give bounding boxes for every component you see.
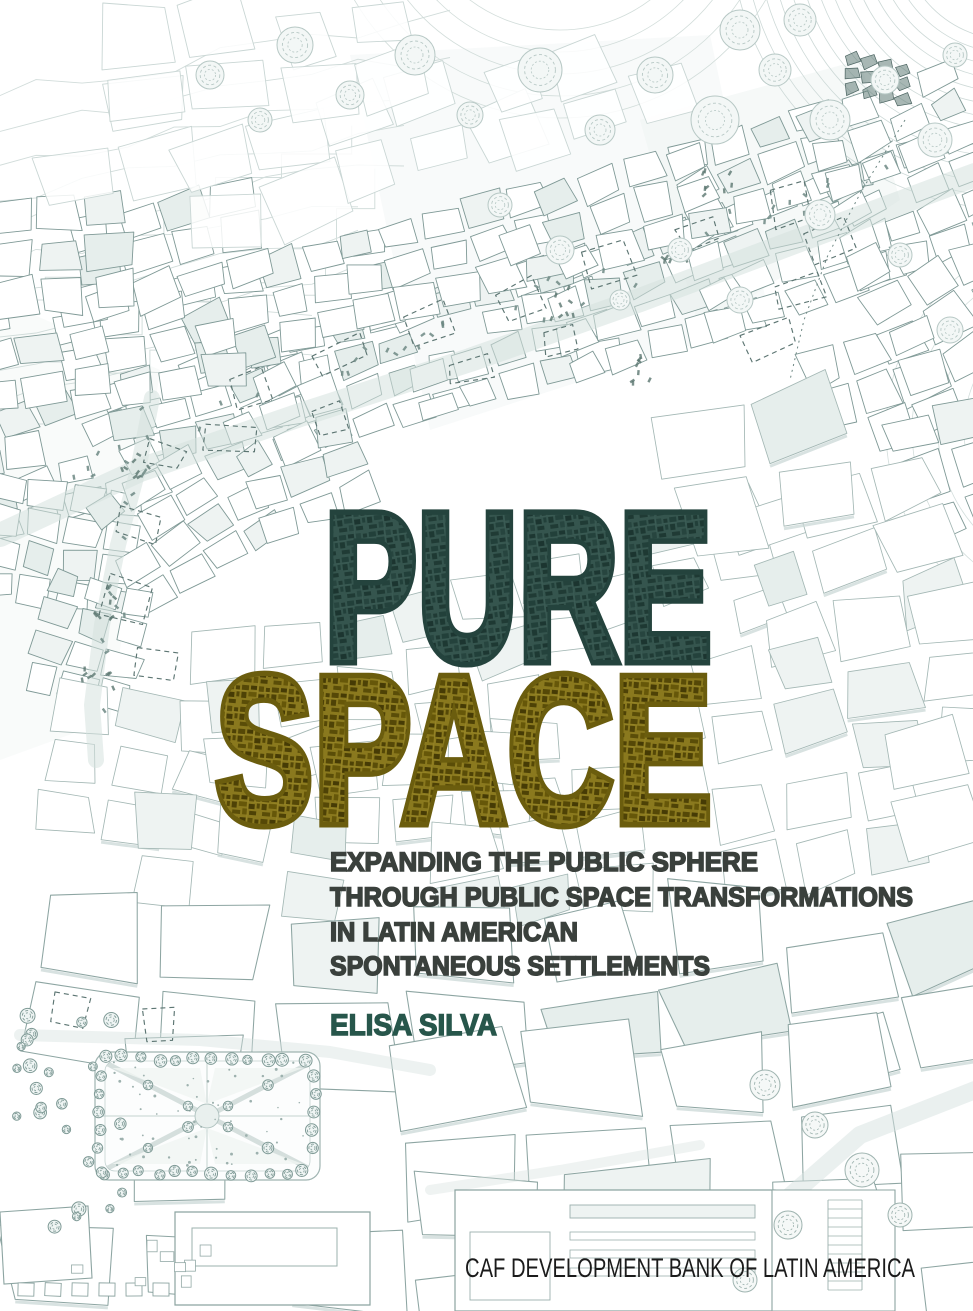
publisher-name: CAF DEVELOPMENT BANK OF LATIN AMERICA bbox=[465, 1253, 915, 1283]
subtitle-line-4: SPONTANEOUS SETTLEMENTS bbox=[330, 951, 710, 981]
title-word-space: SPACE bbox=[215, 634, 712, 867]
subtitle-line-2: THROUGH PUBLIC SPACE TRANSFORMATIONS bbox=[330, 882, 913, 912]
subtitle-line-3: IN LATIN AMERICAN bbox=[330, 917, 578, 947]
book-cover: PURE SPACE EXPANDING THE PUBLIC SPHERE T… bbox=[0, 0, 973, 1311]
subtitle-line-1: EXPANDING THE PUBLIC SPHERE bbox=[330, 847, 758, 877]
author-name: ELISA SILVA bbox=[330, 1009, 497, 1042]
cover-typography: PURE SPACE EXPANDING THE PUBLIC SPHERE T… bbox=[0, 0, 973, 1311]
